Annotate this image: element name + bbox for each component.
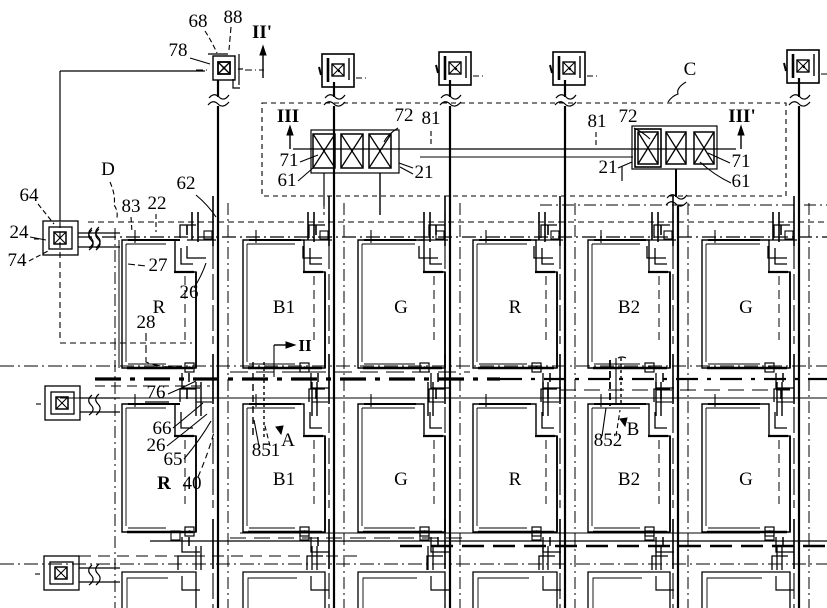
svg-text:B: B [627,419,640,440]
svg-text:III: III [277,106,299,127]
svg-text:65: 65 [164,449,183,470]
svg-text:24: 24 [10,222,30,243]
svg-text:21: 21 [599,157,618,178]
svg-text:81: 81 [422,108,441,129]
svg-text:22: 22 [148,193,167,214]
svg-text:B1: B1 [273,297,295,318]
svg-text:II: II [298,336,312,355]
svg-text:81: 81 [588,111,607,132]
svg-text:851: 851 [252,440,281,461]
svg-text:B1: B1 [273,469,295,490]
svg-text:68: 68 [189,11,208,32]
svg-text:D: D [101,159,115,180]
svg-text:76: 76 [147,382,166,403]
svg-text:72: 72 [619,106,638,127]
svg-text:III': III' [728,106,755,127]
svg-text:78: 78 [169,40,188,61]
svg-text:B2: B2 [618,297,640,318]
svg-text:A: A [281,430,295,451]
svg-text:28: 28 [137,312,156,333]
svg-text:62: 62 [177,173,196,194]
svg-text:R: R [509,469,522,490]
svg-text:21: 21 [415,162,434,183]
svg-text:61: 61 [732,171,751,192]
svg-text:C: C [684,59,697,80]
svg-text:61: 61 [278,170,297,191]
svg-text:71: 71 [280,150,299,171]
svg-text:83: 83 [122,196,141,217]
svg-text:71: 71 [732,151,751,172]
svg-text:852: 852 [594,430,623,451]
svg-text:G: G [739,297,753,318]
svg-text:R: R [509,297,522,318]
svg-text:II': II' [252,22,272,43]
svg-text:64: 64 [20,185,40,206]
svg-text:88: 88 [224,7,243,28]
svg-text:B2: B2 [618,469,640,490]
svg-text:72: 72 [395,105,414,126]
svg-text:74: 74 [8,250,28,271]
svg-text:G: G [739,469,753,490]
svg-text:G: G [394,297,408,318]
svg-text:27: 27 [149,255,168,276]
svg-text:G: G [394,469,408,490]
svg-text:R: R [157,473,171,494]
